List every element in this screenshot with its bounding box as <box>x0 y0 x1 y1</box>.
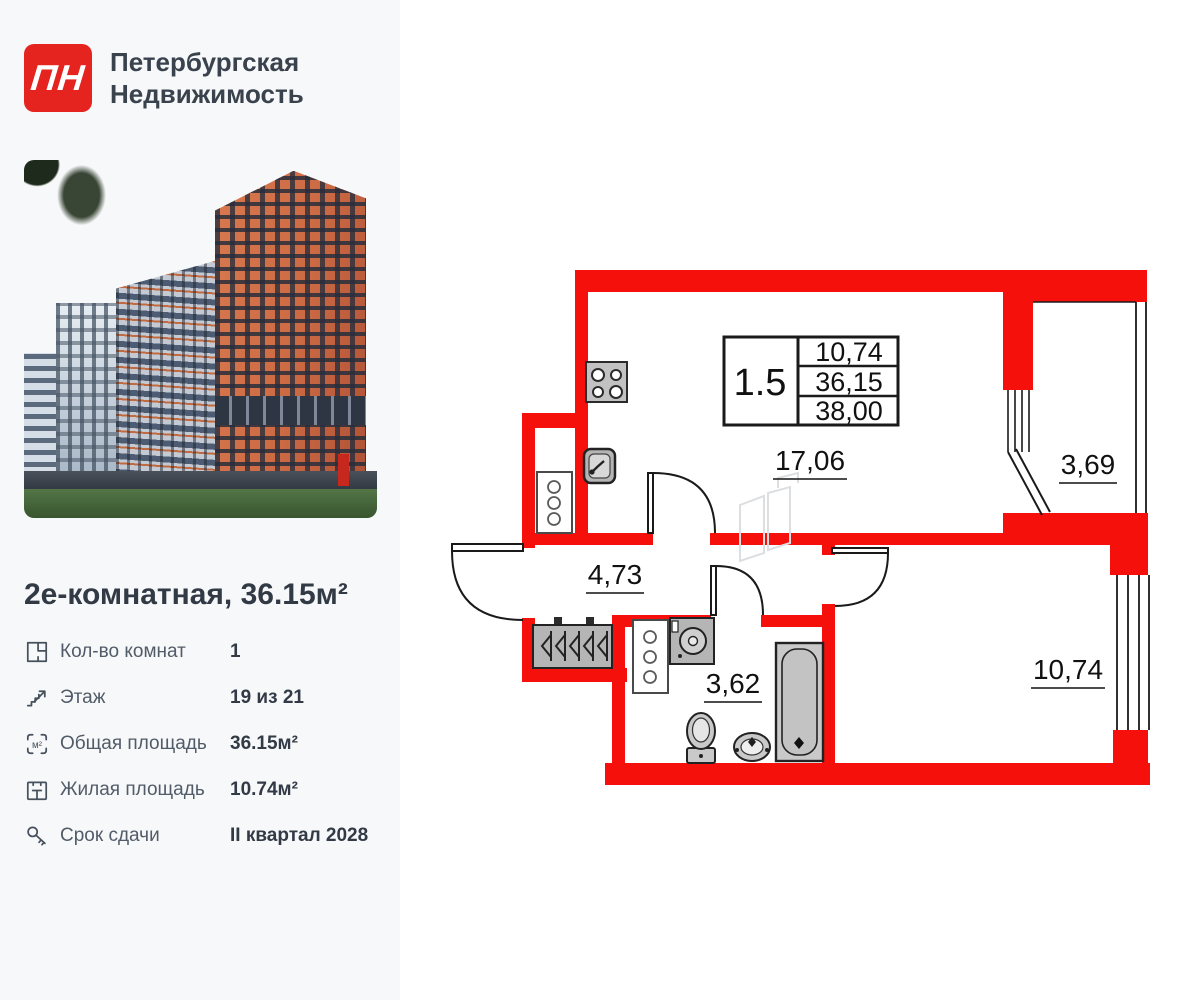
room-label-bedroom: 10,74 <box>1033 654 1103 685</box>
photo-right-tower <box>215 171 367 479</box>
svg-text:м²: м² <box>32 740 43 751</box>
detail-row-deadline: Срок сдачи II квартал 2028 <box>24 813 384 859</box>
detail-label: Жилая площадь <box>60 779 205 801</box>
spec-rooms: 1.5 <box>734 362 787 404</box>
detail-value: 1 <box>230 641 241 663</box>
photo-dark-band <box>215 396 367 425</box>
spec-living-area: 10,74 <box>815 337 883 367</box>
photo-lawn <box>24 489 377 518</box>
floorplan: 17,06 3,69 4,73 3,62 10,74 1.5 10,74 36,… <box>435 255 1165 805</box>
detail-value: 36.15м² <box>230 733 298 755</box>
listing-sidebar: ПН Петербургская Недвижимость 2е-комнатн… <box>0 0 400 1000</box>
stove-icon <box>586 362 627 402</box>
bathtub-icon <box>776 643 823 761</box>
bedroom-door-leaf <box>832 548 888 553</box>
room-label-hallway: 4,73 <box>588 559 643 590</box>
brand-logo-letters: ПН <box>29 57 87 99</box>
bathroom-door-leaf <box>711 566 716 615</box>
detail-row-living-area: Жилая площадь 10.74м² <box>24 767 384 813</box>
detail-row-total-area: м² Общая площадь 36.15м² <box>24 721 384 767</box>
bedroom-window <box>1117 575 1149 730</box>
detail-row-floor: Этаж 19 из 21 <box>24 675 384 721</box>
brand-name: Петербургская Недвижимость <box>110 46 304 110</box>
rooms-icon <box>24 639 50 665</box>
detail-value: II квартал 2028 <box>230 825 368 847</box>
bath-cabinet-icon <box>633 620 668 693</box>
room-label-kitchen-living: 17,06 <box>775 445 845 476</box>
living-door-arc <box>653 473 715 533</box>
balcony-window <box>1136 302 1146 513</box>
detail-label: Этаж <box>60 687 105 709</box>
washing-machine-icon <box>670 618 714 664</box>
key-icon <box>24 823 50 849</box>
balcony-door-open <box>1008 449 1050 515</box>
bathroom-door-arc <box>716 566 763 615</box>
plan-spec-table: 1.5 10,74 36,15 38,00 <box>724 337 898 426</box>
brand: ПН Петербургская Недвижимость <box>24 44 304 112</box>
detail-label: Кол-во комнат <box>60 641 186 663</box>
brand-logo-icon: ПН <box>24 44 92 112</box>
details-list: Кол-во комнат 1 Этаж 19 из 21 м² Общая п… <box>24 629 384 859</box>
entrance-door-arc <box>452 551 523 620</box>
washbasin-icon <box>734 733 770 761</box>
total-area-icon: м² <box>24 731 50 757</box>
brand-name-line1: Петербургская <box>110 46 304 78</box>
page-title: 2е-комнатная, 36.15м² <box>24 578 348 612</box>
riser-cabinet-icon <box>537 472 572 533</box>
stairs-icon <box>24 685 50 711</box>
bedroom-door-arc <box>835 553 888 606</box>
wardrobe-icon <box>533 617 612 668</box>
detail-label: Общая площадь <box>60 733 207 755</box>
detail-row-rooms: Кол-во комнат 1 <box>24 629 384 675</box>
detail-label: Срок сдачи <box>60 825 160 847</box>
photo-tree <box>24 160 126 250</box>
spec-total-reduced: 38,00 <box>815 396 883 426</box>
spec-total-area: 36,15 <box>815 367 883 397</box>
photo-red-sign <box>338 454 349 486</box>
detail-value: 10.74м² <box>230 779 298 801</box>
room-label-balcony: 3,69 <box>1061 449 1116 480</box>
building-photo <box>24 160 377 518</box>
plan-watermark <box>740 473 798 561</box>
detail-value: 19 из 21 <box>230 687 304 709</box>
kitchen-sink-icon <box>584 449 615 483</box>
balcony-glazing <box>1008 390 1029 452</box>
brand-name-line2: Недвижимость <box>110 78 304 110</box>
toilet-icon <box>687 713 715 763</box>
entrance-door-leaf <box>452 544 523 551</box>
living-area-icon <box>24 777 50 803</box>
room-label-bathroom: 3,62 <box>706 668 761 699</box>
living-door-leaf <box>648 473 653 533</box>
